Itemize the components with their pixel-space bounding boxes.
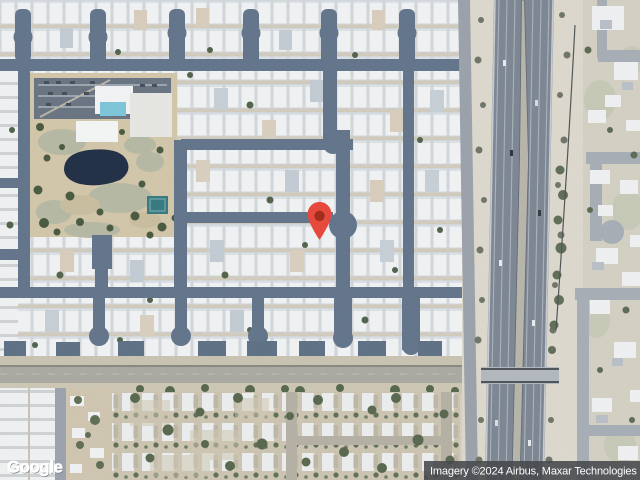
- svg-text:Google: Google: [7, 459, 63, 477]
- svg-text:Imagery ©2024 Airbus, Maxar Te: Imagery ©2024 Airbus, Maxar Technologies: [430, 466, 637, 478]
